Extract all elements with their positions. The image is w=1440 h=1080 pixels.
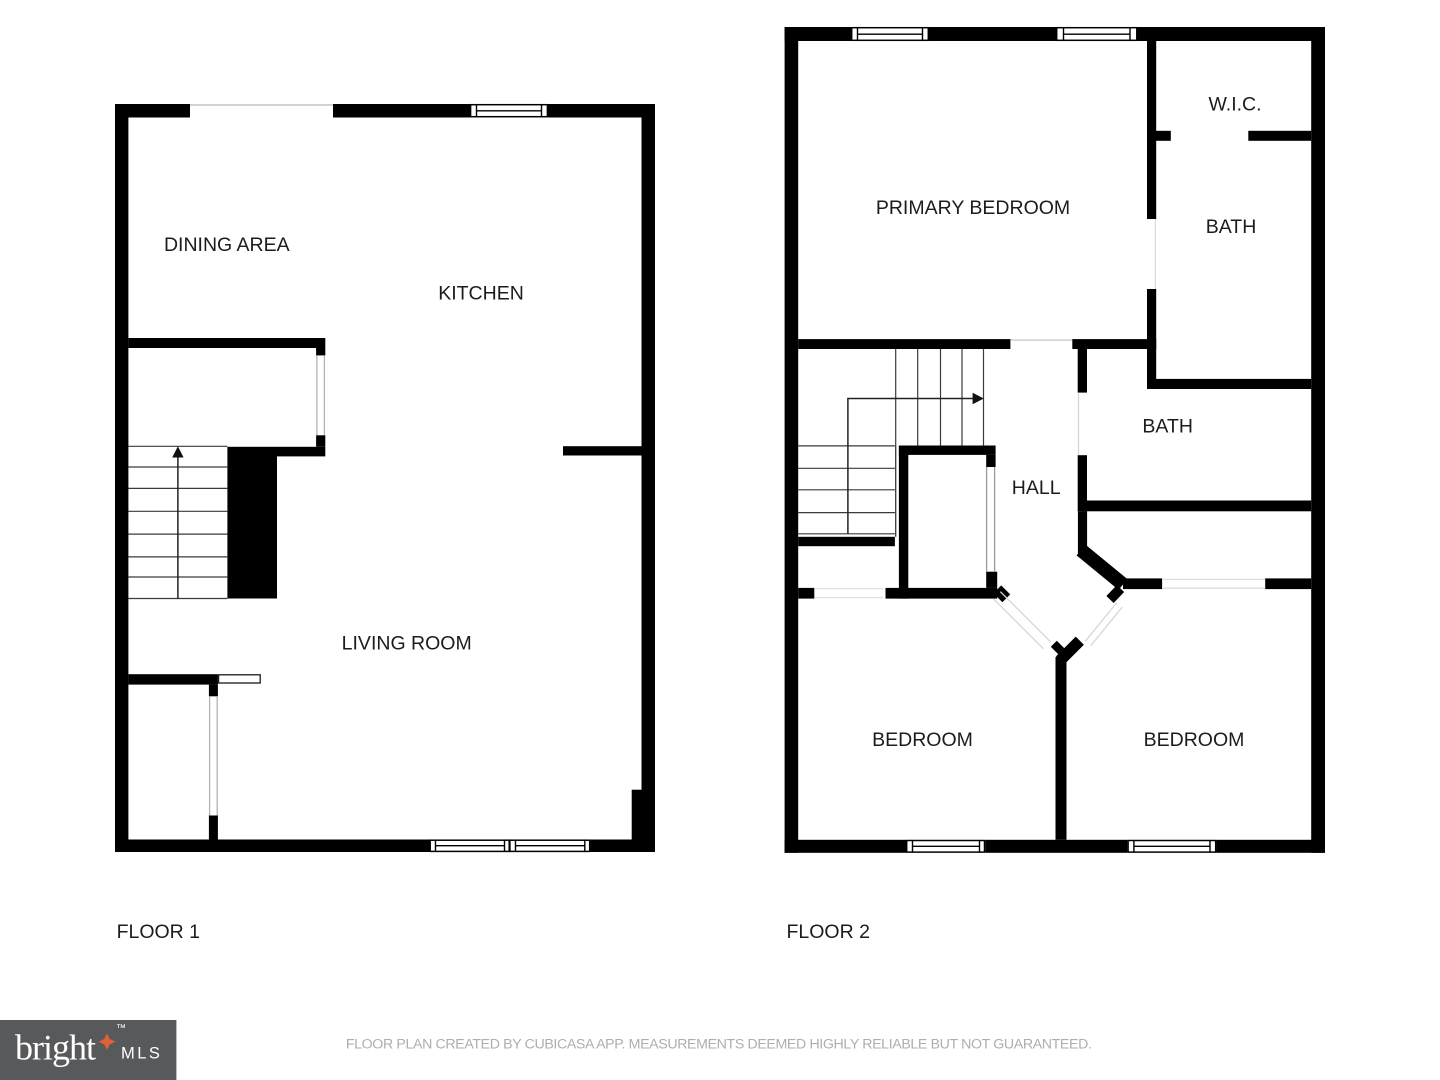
svg-text:bright: bright: [15, 1028, 96, 1068]
svg-text:FLOOR 1: FLOOR 1: [117, 921, 200, 943]
svg-text:MLS: MLS: [121, 1044, 162, 1062]
svg-text:FLOOR 2: FLOOR 2: [787, 921, 870, 943]
svg-text:W.I.C.: W.I.C.: [1208, 94, 1261, 116]
svg-text:™: ™: [116, 1023, 126, 1034]
svg-text:KITCHEN: KITCHEN: [438, 282, 524, 304]
svg-text:BEDROOM: BEDROOM: [872, 729, 973, 751]
svg-text:DINING AREA: DINING AREA: [164, 234, 290, 256]
svg-text:BEDROOM: BEDROOM: [1144, 729, 1245, 751]
svg-text:LIVING ROOM: LIVING ROOM: [342, 633, 472, 655]
svg-text:HALL: HALL: [1012, 477, 1061, 499]
svg-text:PRIMARY BEDROOM: PRIMARY BEDROOM: [876, 197, 1070, 219]
svg-text:FLOOR PLAN CREATED BY CUBICASA: FLOOR PLAN CREATED BY CUBICASA APP. MEAS…: [346, 1036, 1092, 1052]
svg-text:BATH: BATH: [1142, 416, 1193, 438]
svg-text:BATH: BATH: [1206, 216, 1257, 238]
